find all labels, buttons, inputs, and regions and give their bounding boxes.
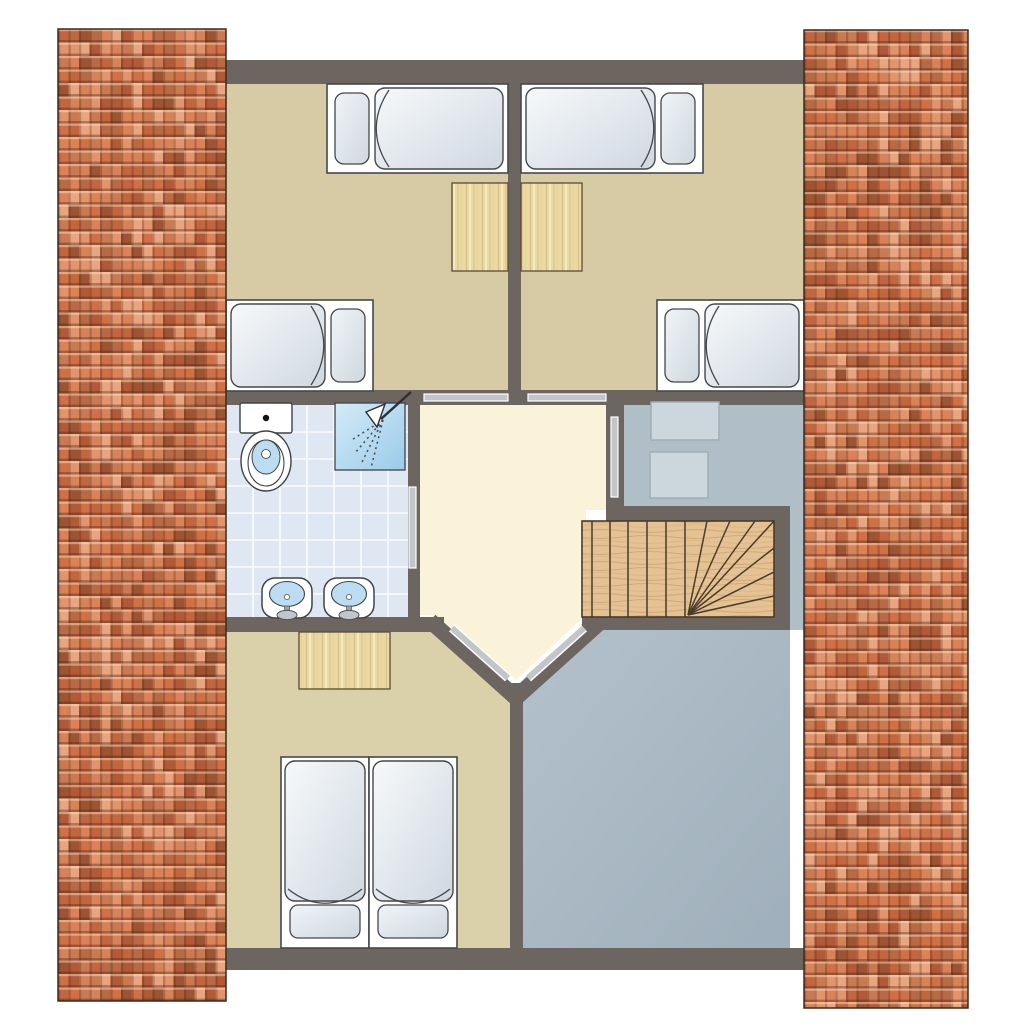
bed-pillow — [378, 905, 448, 938]
sink-drain — [346, 594, 351, 599]
roof-tiles — [804, 30, 972, 1016]
bed-duvet — [373, 761, 453, 901]
bed-top-right-a — [521, 84, 703, 173]
toilet-flush-button — [263, 415, 269, 421]
sink-faucet-base — [339, 610, 359, 619]
toilet — [240, 403, 292, 491]
wall-center-divider — [508, 84, 521, 390]
wall-stairs-bottom — [582, 616, 790, 630]
bed-duvet — [231, 304, 325, 387]
bed-pillow — [665, 309, 699, 382]
cabinet-upper — [651, 402, 719, 440]
winder-staircase — [582, 521, 774, 617]
bed-duvet — [526, 88, 655, 169]
wall-stairs-top — [606, 506, 790, 521]
door-bedroom-top-left — [424, 394, 508, 401]
sink-left — [262, 578, 312, 620]
cabinet-lower — [650, 452, 708, 498]
roof-tiles — [58, 29, 237, 1001]
wall-outer-top — [226, 60, 804, 84]
roof-left — [58, 29, 237, 1001]
bed-top-left-a — [327, 84, 508, 173]
bed-duvet — [705, 304, 799, 387]
floor-plan-canvas — [0, 0, 1024, 1024]
door-storage-room — [611, 417, 618, 497]
bed-top-right-b — [657, 300, 804, 391]
desk-top-right-room — [521, 183, 582, 271]
shower — [335, 392, 411, 470]
wall-bath-bottom — [226, 617, 444, 632]
roof-right — [804, 30, 972, 1016]
bed-pillow — [331, 309, 365, 382]
bed-double-left — [281, 757, 369, 948]
floor-plan — [0, 0, 1024, 1024]
desk-bottom-room — [299, 632, 390, 689]
desk-top-left-room — [452, 183, 508, 271]
door-bedroom-top-right — [528, 394, 606, 401]
wall-stairs-right — [774, 521, 790, 630]
door-bathroom — [409, 487, 416, 568]
bed-pillow — [661, 93, 695, 164]
bed-duvet — [285, 761, 365, 901]
sink-faucet-base — [277, 610, 297, 619]
sink-right — [324, 578, 374, 620]
bed-double-right — [369, 757, 457, 948]
bed-duvet — [375, 88, 503, 169]
wall-outer-bottom — [226, 948, 804, 970]
bed-pillow — [290, 905, 360, 938]
bed-pillow — [335, 93, 369, 164]
wall-bottom-divider — [510, 683, 523, 948]
bed-top-left-b — [226, 300, 373, 391]
sink-drain — [284, 594, 289, 599]
